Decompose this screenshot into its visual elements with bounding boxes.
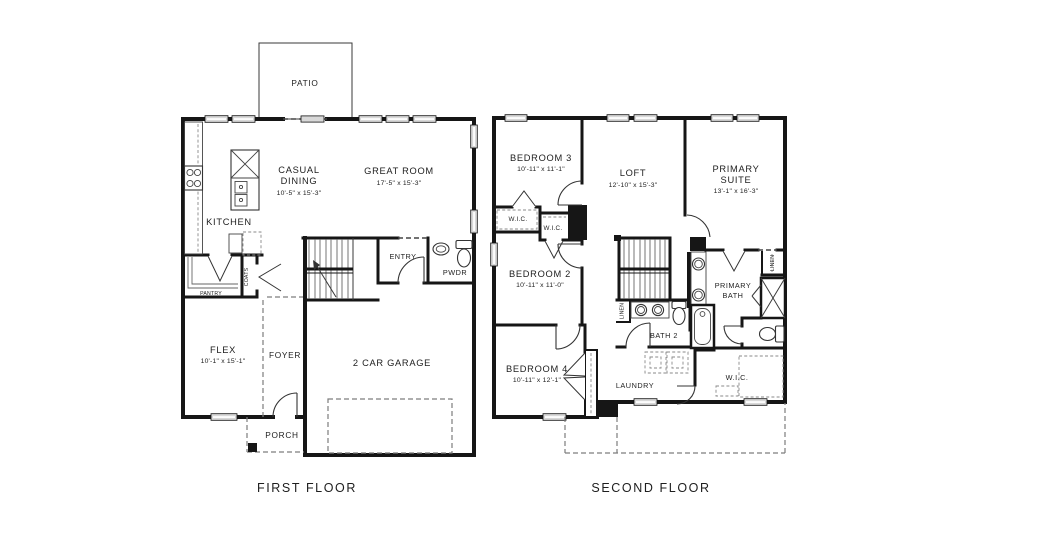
wic-primary-label: W.I.C. (726, 373, 749, 382)
kitchen-island (231, 150, 259, 210)
bath2-toilet-icon (672, 302, 686, 325)
bedroom4-door (556, 325, 580, 349)
primary-vanity-sinks-icon (691, 252, 706, 308)
powder-toilet-icon (456, 241, 472, 268)
pantry-label: PANTRY (200, 291, 222, 297)
garage-door-outline (328, 399, 452, 453)
kitchen-label: KITCHEN (206, 217, 252, 227)
pantry-door (208, 256, 232, 281)
floor-plan-page: PATIO CASUAL DINING 10'-5" x 15'-3" GREA… (0, 0, 1038, 560)
first-floor-plan: PATIO CASUAL DINING 10'-5" x 15'-3" GREA… (183, 43, 477, 495)
bedroom2-door (558, 244, 582, 268)
primary-suite-label-2: SUITE (721, 175, 752, 185)
bath2-label: BATH 2 (650, 331, 678, 340)
foyer-label: FOYER (269, 350, 301, 360)
laundry-label: LAUNDRY (616, 381, 654, 390)
patio-label: PATIO (291, 78, 318, 88)
primary-toilet-icon (760, 326, 785, 342)
wic-a-label: W.I.C. (509, 216, 528, 223)
entry-label: ENTRY (389, 252, 416, 261)
wall-block (597, 400, 618, 417)
coats-closet-door (259, 264, 281, 291)
shower-icon (752, 278, 785, 318)
bedroom4-label: BEDROOM 4 (506, 364, 568, 374)
great-room-label: GREAT ROOM (364, 166, 434, 176)
primary-bath-label-1: PRIMARY (715, 281, 752, 290)
linen-b-label: LINEN (620, 303, 626, 319)
bedroom4-closet-doors (564, 353, 585, 400)
wall-block (568, 205, 587, 240)
bath2-vanity-sinks-icon (631, 302, 669, 318)
primary-suite-door (687, 215, 710, 237)
washer-dryer-icon (645, 352, 688, 373)
wic-b-label: W.I.C. (544, 225, 563, 232)
first-floor-title: FIRST FLOOR (257, 481, 357, 495)
front-door (273, 393, 297, 417)
powder-label: PWDR (443, 268, 467, 277)
bedroom3-door (558, 181, 582, 205)
primary-suite-dims: 13'-1" x 16'-3" (714, 188, 759, 195)
primary-suite-label-1: PRIMARY (712, 164, 759, 174)
casual-dining-label-2: DINING (281, 176, 318, 186)
flex-dims: 10'-1" x 15'-1" (201, 358, 246, 365)
second-floor-title: SECOND FLOOR (591, 481, 710, 495)
stairs-second-floor (619, 239, 670, 299)
bath2-door (626, 323, 650, 347)
second-floor-plan: BEDROOM 3 10'-11" x 11'-1" LOFT 12'-10" … (491, 115, 785, 495)
bedroom3-label: BEDROOM 3 (510, 153, 572, 163)
linen-a-label: LINEN (770, 255, 776, 271)
loft-dims: 12'-10" x 15'-3" (609, 182, 658, 189)
garage-label: 2 CAR GARAGE (353, 358, 431, 368)
casual-dining-dims: 10'-5" x 15'-3" (277, 190, 322, 197)
stove-icon (185, 166, 203, 190)
bedroom2-dims: 10'-11" x 11'-0" (516, 282, 564, 289)
floor-plan-drawing: PATIO CASUAL DINING 10'-5" x 15'-3" GREA… (0, 0, 1038, 560)
coats-label: COATS (244, 267, 250, 286)
toilet-room-door (724, 326, 742, 344)
stairs-first-floor (305, 238, 353, 300)
wall-block (690, 237, 706, 251)
casual-dining-label-1: CASUAL (278, 165, 319, 175)
wic-a-door (512, 191, 536, 207)
dishwasher-icon (229, 232, 261, 255)
porch-post (248, 443, 257, 452)
bedroom2-label: BEDROOM 2 (509, 269, 571, 279)
great-room-dims: 17'-5" x 15'-3" (377, 180, 422, 187)
primary-bath-door (723, 251, 745, 271)
loft-label: LOFT (620, 168, 647, 178)
powder-sink-icon (433, 243, 449, 255)
bedroom3-dims: 10'-11" x 11'-1" (517, 166, 565, 173)
duct-chase (585, 350, 597, 417)
primary-bath-label-2: BATH (723, 291, 744, 300)
bedroom4-dims: 10'-11" x 12'-1" (513, 377, 562, 384)
porch-label: PORCH (265, 430, 298, 440)
flex-label: FLEX (210, 345, 236, 355)
bathtub-icon (691, 305, 714, 348)
patio-slider-window (301, 116, 324, 122)
